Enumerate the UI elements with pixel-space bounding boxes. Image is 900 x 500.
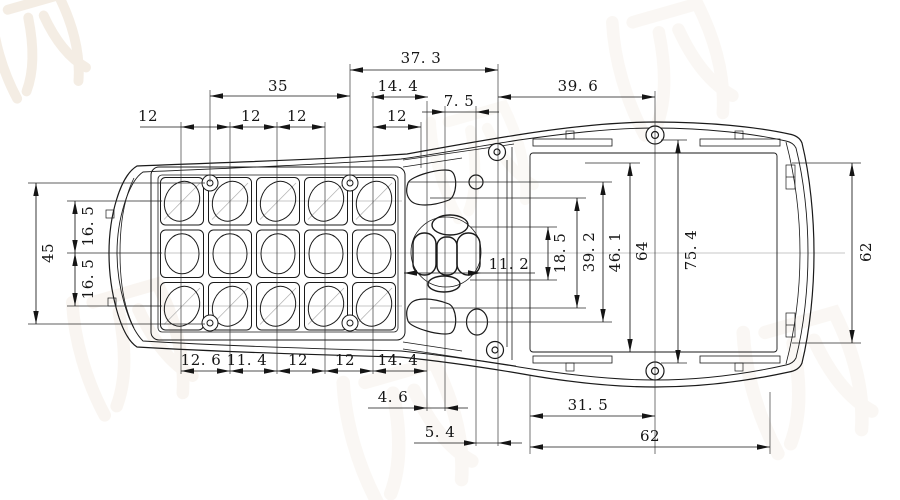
- head-top-rail: [533, 139, 612, 146]
- housing-inner-outline: [117, 128, 808, 380]
- dim-label: 62: [857, 242, 875, 262]
- dpad-cluster: [411, 215, 481, 292]
- keypad-screw-boss: [342, 315, 358, 331]
- dim-arrow: [574, 198, 579, 211]
- technical-drawing: 37. 33514. 439. 67. 51212121211. 212. 61…: [0, 0, 900, 500]
- key-hole: [357, 234, 391, 274]
- dim-label: 64: [633, 241, 651, 261]
- dim-arrow: [849, 163, 854, 176]
- dim-arrow: [217, 124, 230, 129]
- dim-arrow: [264, 124, 277, 129]
- dim-label: 12: [241, 107, 261, 125]
- dim-label: 35: [268, 77, 288, 95]
- dim-arrow: [230, 368, 243, 373]
- dim-arrow: [264, 368, 277, 373]
- rail-tab: [566, 131, 574, 139]
- dim-arrow: [277, 368, 290, 373]
- dim-arrow: [277, 124, 290, 129]
- dim-arrow: [33, 311, 38, 324]
- dim-label: 11. 2: [489, 255, 530, 273]
- dim-label: 12: [387, 107, 407, 125]
- watermark-glyph: [606, 0, 736, 137]
- dim-arrow: [464, 440, 477, 445]
- dim-arrow: [373, 124, 386, 129]
- dim-arrow: [360, 368, 373, 373]
- dim-arrow: [642, 94, 655, 99]
- dim-label: 14. 4: [378, 351, 419, 369]
- dim-arrow: [530, 444, 543, 449]
- dim-arrow: [675, 350, 680, 363]
- keypad-cell: [257, 230, 300, 278]
- housing-outer-outline: [109, 122, 814, 387]
- dim-arrow: [72, 253, 77, 266]
- dim-arrow: [627, 339, 632, 352]
- head-top-rail: [700, 139, 780, 146]
- drawing-canvas: 37. 33514. 439. 67. 51212121211. 212. 61…: [0, 0, 900, 500]
- dim-arrow: [627, 163, 632, 176]
- dim-label: 31. 5: [568, 396, 609, 414]
- key-hole: [165, 234, 199, 274]
- dim-arrow: [642, 413, 655, 418]
- head-bottom-rail: [533, 356, 612, 363]
- neck-bottom-rib: [403, 342, 462, 351]
- keypad-cell: [353, 230, 396, 278]
- dim-arrow: [432, 109, 445, 114]
- watermark-glyph: [737, 304, 876, 455]
- dim-label: 62: [640, 427, 660, 445]
- dim-arrow: [337, 93, 350, 98]
- dim-arrow: [217, 368, 230, 373]
- dim-label: 75. 4: [682, 230, 700, 271]
- dim-arrow: [408, 124, 421, 129]
- dim-arrow: [600, 182, 605, 195]
- dim-label: 16. 5: [79, 206, 97, 247]
- dim-arrow: [498, 440, 511, 445]
- dim-arrow: [545, 227, 550, 240]
- dim-arrow: [210, 93, 223, 98]
- dim-arrow: [498, 94, 511, 99]
- neck-screw-boss-bottom: [487, 342, 504, 359]
- dim-arrow: [230, 124, 243, 129]
- keypad-screw-boss: [202, 315, 218, 331]
- dim-label: 18. 5: [551, 233, 569, 274]
- keypad-cell: [305, 230, 348, 278]
- neck-bottom-pocket: [407, 299, 456, 334]
- dim-label: 46. 1: [606, 232, 624, 273]
- dim-label: 12: [335, 351, 355, 369]
- dpad-center-key: [437, 237, 457, 275]
- keypad-cell: [161, 230, 204, 278]
- dim-label: 39. 6: [558, 77, 599, 95]
- dim-arrow: [545, 267, 550, 280]
- dim-arrow: [350, 67, 363, 72]
- dim-arrow: [574, 295, 579, 308]
- dim-arrow: [468, 270, 481, 275]
- dim-label: 12: [288, 351, 308, 369]
- dim-arrow: [485, 67, 498, 72]
- dim-label: 12: [138, 107, 158, 125]
- dim-arrow: [325, 368, 338, 373]
- dim-arrow: [72, 201, 77, 214]
- dim-arrow: [72, 240, 77, 253]
- rail-tab: [566, 363, 574, 371]
- dim-arrow: [415, 94, 428, 99]
- dim-label: 12: [287, 107, 307, 125]
- keypad-frame-outer: [151, 167, 405, 340]
- dim-arrow: [675, 140, 680, 153]
- dim-arrow: [530, 413, 543, 418]
- dim-arrow: [312, 368, 325, 373]
- dim-label: 39. 2: [580, 232, 598, 273]
- key-hole: [261, 234, 295, 274]
- keypad-grid: [158, 175, 398, 332]
- dpad-top-key: [432, 215, 468, 235]
- dpad-left-key: [413, 233, 436, 275]
- dim-label: 37. 3: [401, 49, 442, 67]
- dim-arrow: [33, 183, 38, 196]
- dim-label: 12. 6: [181, 351, 222, 369]
- dim-arrow: [312, 124, 325, 129]
- dim-arrow: [404, 270, 417, 275]
- dim-label: 11. 4: [227, 351, 268, 369]
- dim-arrow: [181, 124, 194, 129]
- key-hole: [309, 234, 343, 274]
- dim-label: 45: [39, 243, 57, 263]
- device-housing: [106, 122, 814, 387]
- neck-screw-boss-top: [489, 144, 506, 161]
- dim-label: 14. 4: [378, 77, 419, 95]
- dim-label: 16. 5: [79, 259, 97, 300]
- dim-label: 5. 4: [425, 423, 456, 441]
- dim-label: 4. 6: [378, 388, 409, 406]
- watermark-glyph: [0, 0, 89, 100]
- dim-label: 7. 5: [444, 92, 475, 110]
- dim-arrow: [600, 309, 605, 322]
- keypad-frame-inner: [158, 175, 398, 332]
